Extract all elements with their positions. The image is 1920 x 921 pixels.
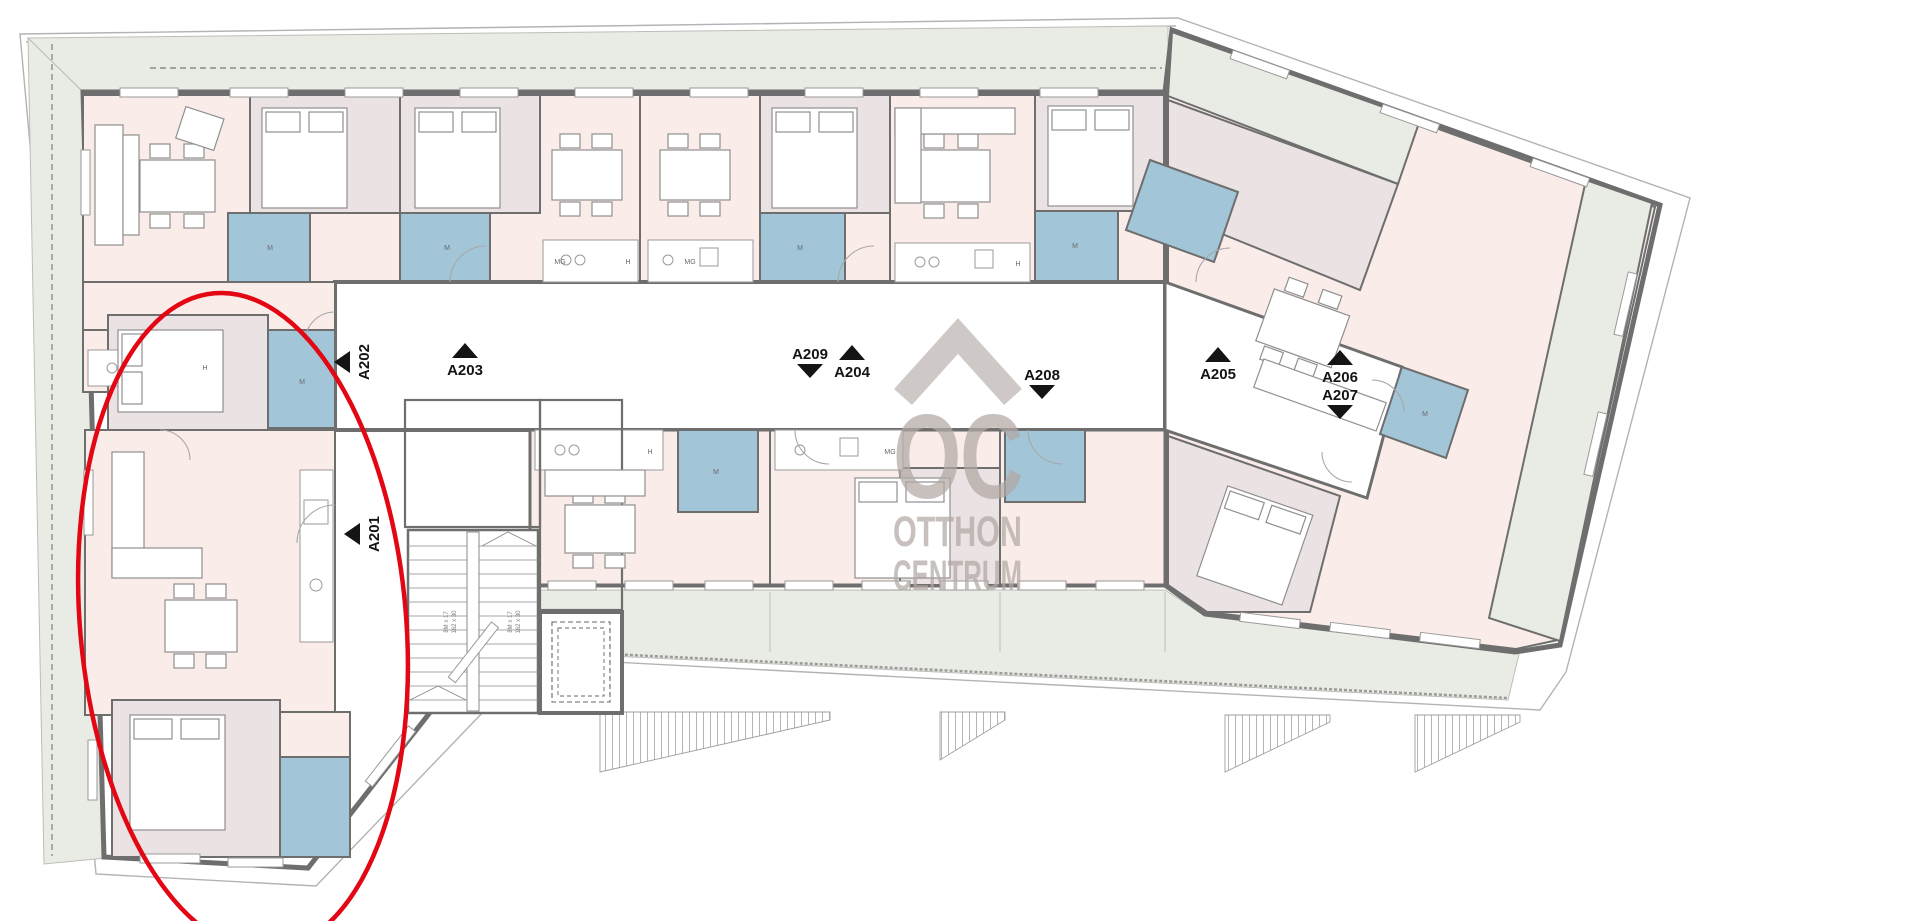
apartment-id: A203 [447, 362, 483, 379]
apartment-id: A209 [792, 346, 828, 363]
bed [772, 108, 857, 208]
washer-label: M [797, 245, 803, 252]
kitchen-a201 [300, 470, 333, 642]
washer-label: M [299, 379, 305, 386]
watermark-line2: CENTRUM [893, 552, 1022, 600]
room-bathroom-a201-2 [280, 757, 350, 857]
stair-note-1a: 8M x 17 [444, 611, 450, 633]
apartment-id: A208 [1024, 367, 1060, 384]
dishwasher-label: MG [554, 259, 565, 266]
bed [415, 108, 500, 208]
watermark-monogram: OC [893, 390, 1022, 524]
apartment-id: A204 [834, 364, 871, 381]
kitchen-a204 [648, 240, 753, 282]
kitchen-a209 [535, 430, 663, 470]
floorplan-stage: 8M x 17 162 x 30 8M x 17 162 x 30 [0, 0, 1920, 921]
washer-label: M [444, 245, 450, 252]
watermark-line1: OTTHON [893, 508, 1022, 556]
fridge-label: H [625, 259, 630, 266]
sofa [95, 125, 139, 245]
washer-label: M [713, 469, 719, 476]
washer-label: M [1422, 411, 1428, 418]
washer-label: M [267, 245, 273, 252]
terrace-top-strip [28, 26, 1168, 92]
fridge-label: H [1015, 261, 1020, 268]
bed [262, 108, 347, 208]
bed [1048, 106, 1133, 206]
staircase: 8M x 17 162 x 30 8M x 17 162 x 30 [408, 530, 538, 713]
apartment-id: A205 [1200, 366, 1236, 383]
apartment-id: A206 [1322, 369, 1358, 386]
floorplan-drawing: 8M x 17 162 x 30 8M x 17 162 x 30 [0, 0, 1920, 921]
apartment-id: A201 [366, 516, 383, 552]
washer-label: M [1072, 243, 1078, 250]
fridge-label: H [202, 365, 207, 372]
apartment-id: A202 [356, 344, 373, 380]
kitchen-a205 [895, 243, 1030, 282]
dishwasher-label: MG [684, 259, 695, 266]
stair-note-2b: 162 x 30 [516, 610, 522, 634]
awnings [600, 712, 1520, 772]
stair-note-2a: 8M x 17 [508, 611, 514, 633]
bed [130, 715, 225, 830]
sofa [545, 470, 645, 496]
apartment-id: A207 [1322, 387, 1358, 404]
stair-note-1b: 162 x 30 [452, 610, 458, 634]
elevator [540, 612, 622, 713]
fridge-label: H [647, 449, 652, 456]
